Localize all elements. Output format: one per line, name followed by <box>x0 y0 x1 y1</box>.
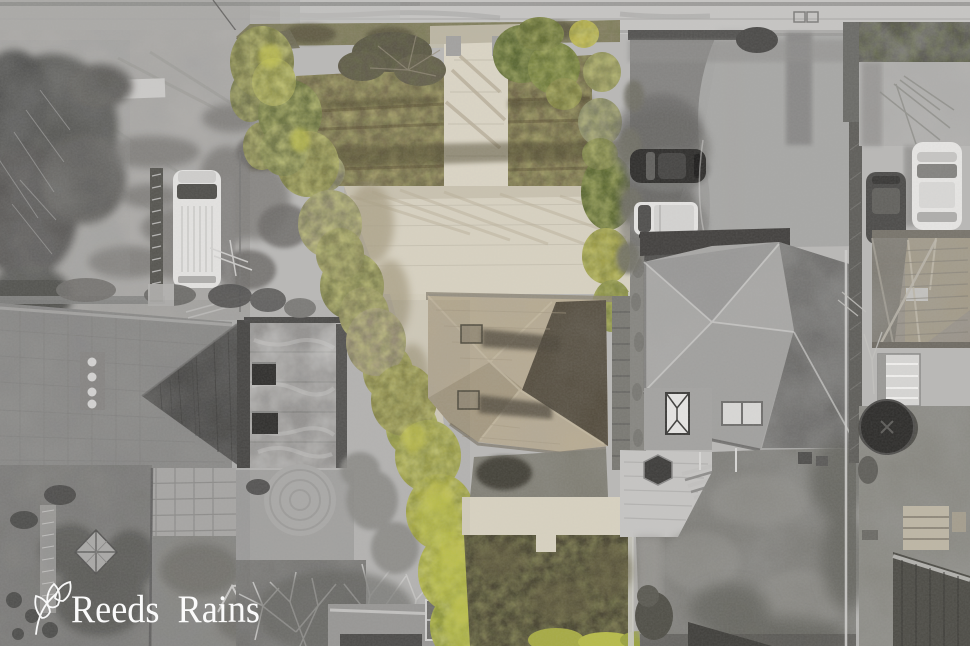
svg-text:Reeds Rains: Reeds Rains <box>71 588 260 631</box>
